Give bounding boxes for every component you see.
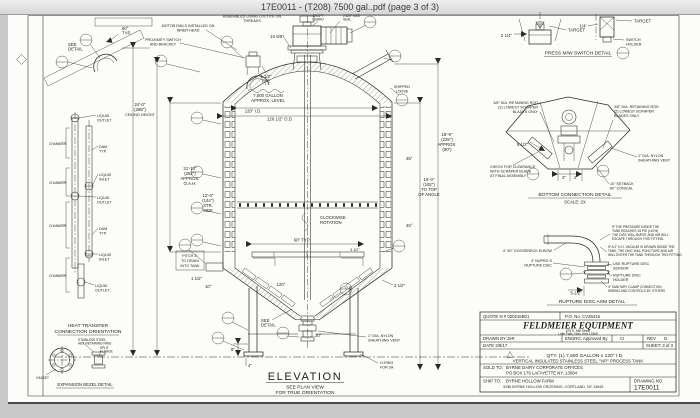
dim-45deg: 45° [406,223,413,228]
label-liquid-outlet: LIQUID [95,284,108,288]
engineering-drawing: 60° TYP. SEE DETAIL CHANNELS CHANNELS CH… [0,0,700,418]
label-channels: CHANNELS [49,224,66,228]
tb-po: P.O. No. CV26415 [565,314,601,319]
note-pitch: PITCH 2" [182,254,198,258]
label-liquid-outlet: OUTLET [97,201,112,205]
dim-top-of-angle: OF ANGLE [418,192,440,197]
bezel-title: EXPANSION BEZEL DETAIL [57,382,113,387]
note-retaining-rod: 3/8" DIA. RETAINING ROD [493,101,538,105]
label-disc-holder: RUPTURE DISC [613,274,641,278]
tb-engrg: ENGRG. Approved By [565,336,608,341]
note-motor-rails: INNER HEAD [177,29,200,33]
label-disc-holder: HOLDER [613,278,629,282]
note-clearance: WITH SCRAPER BLADE [490,170,532,174]
dim-bracket: 3 1/2" [350,248,360,252]
tb-ship-to-label: SHIP TO: [483,379,501,384]
tank-elevation [55,16,530,357]
bezel-note: GASKET [36,376,49,380]
view-subtitle: SEE PLAN VIEW [286,385,324,391]
label-nylon-vent: SHEATHING VENT [638,159,671,163]
right-dimension-lines [394,64,438,370]
tb-sold-to-label: SOLD TO: [483,365,503,370]
label-rupture-disc: 4" NUPRO S [531,259,553,263]
dim-10-deg: 10° [205,284,212,289]
dim-2: 2" [574,175,578,180]
tb-rev-label: REV [647,336,656,341]
label-liquid-outlet: OUTLET [97,119,112,123]
rupture-disc-title: RUPTURE DISC ASM DETAIL [559,299,626,305]
label-oring: FOR 3A [380,366,394,370]
dim-45deg: 45° [406,156,413,161]
note-pitch: TO DRAIN [181,259,199,263]
label-gooseneck: 4" 90° GOOSENECK ELBOW [503,249,553,253]
tb-sold-to: PO BOX 176 LAFAYETTE NY, 13084 [506,371,578,376]
label-nylon-vent: 1" DIA. NYLON [368,334,394,338]
dim-2-1-4: 2 1/4" [501,33,513,38]
note-motor-rails: MOTOR RAILS INSTALLED ON [162,24,215,28]
tb-drawn-by: DRAWN BY:JeR [483,336,515,341]
label-rotation: ROTATION [320,220,342,225]
label-nylon-vent: SHEATHING VENT [368,339,401,343]
label-nylon-vent: 1" DIA. NYLON [638,154,664,158]
tb-approver: CI [620,336,624,341]
dim-cone-angle: 120° [277,282,286,287]
label-disc-sensor: SENSOR [613,267,629,271]
heat-transfer-title: HEAT TRANSFER [68,323,109,329]
label-dam-typ: DAM [99,145,107,149]
corner-insulation-detail [17,18,152,86]
label-liquid-inlet: INLET [99,258,110,262]
label-see-detail: DETAIL [68,47,83,52]
label-disc-sensor: USE RUPTURE DISC [613,262,650,266]
dim-4: 4" [248,363,252,368]
label-oring: O-RING [380,361,393,365]
label-liquid-outlet: LIQUID [97,196,110,200]
note-clearance: AT FINAL ASSEMBLY [490,174,527,178]
tb-drawing-no-label: DRAWING NO. [634,379,663,384]
diamond-marker [17,55,27,65]
label-seal: SEAL [343,18,351,22]
note-retaining-rod: (2) LOWEST SCRAPER [498,106,538,110]
bottom-connection-title: BOTTOM CONNECTION DETAIL [538,192,611,198]
tb-sheet: SHEET: 3 of 3 [646,343,674,348]
label-liquid-outlet: OUTLET [95,289,110,293]
note-proximity: AND BRACKET [150,43,177,47]
rupture-note: ESCAPE THROUGH THIS FITTING. [612,237,664,241]
dim-sweep: 60" TYP. [294,238,310,243]
dim-1-1-2: 1 1/2" [191,276,203,281]
note-setback: 10" SETBACK [610,182,634,186]
label-channels: CHANNELS [49,274,66,278]
label-clamp-connection: WIRING AND CONTROLS BY OTHERS [608,289,665,293]
dim-1-1-2-typ: TYP. [262,79,271,84]
label-dam-typ: TYP. [99,232,107,236]
dim-1-4: 1/4" [580,24,588,29]
note-clearance: CHECK FOR CLEARANCE [490,165,536,169]
label-liquid-inlet: INLET [99,178,110,182]
label-dam-typ: DAM [99,227,107,231]
tb-sold-to: BYRNE DAIRY CORPORATE OFFICES [506,365,583,370]
note-retaining-rod: BLADES ONLY [513,110,539,114]
expansion-bezel-detail [46,342,105,375]
label-60-typ: TYP. [122,31,131,36]
dim-outer-diameter: 126 1/2" O.D. [267,117,293,122]
note-setback: 60° CONICAL [610,187,633,191]
label-liquid-inlet: LIQUID [99,253,112,257]
dim-5-1-2: 5-1/2" [570,291,582,296]
label-switch-holder: HOLDER [626,43,642,47]
dim-2: 2" [562,175,566,180]
label-channels: CHANNELS [49,142,66,146]
dim-8: 8" [231,347,235,352]
heat-label-leaders [79,115,98,285]
revision-triangle [507,352,513,358]
view-title-elevation: ELEVATION [268,371,343,383]
tb-description: VERTICAL INSULATED STAINLESS STEEL "VIP"… [513,359,644,364]
press-switch-title: PRESS M/W SWITCH DETAIL [545,51,612,57]
note-retaining-rod: (2) LOWEST SCRAPER [614,110,654,114]
dim-approx-height: (90") [442,147,452,152]
tb-rev: D [664,336,667,341]
label-shipped-loose: SHIPPED [394,85,411,89]
dim-leg: 30" [315,333,322,338]
view-subtitle: FOR TRUE ORIENTATION [276,390,335,396]
note-pitch: INTO TANK [180,264,200,268]
note-retaining-rod: 3/8" DIA. RETAINING ROD [614,105,659,109]
label-liquid-outlet: LIQUID [97,114,110,118]
label-switch-holder: SWITCH [626,38,641,42]
tb-ship-to: BYRNE HOLLOW FARM [506,379,554,384]
label-channels: CHANNELS [49,181,66,185]
tb-ship-to: 3156 BYRNE HOLLOW CROSSING, CORTLAND, NY… [503,385,603,389]
dim-inner-diameter: 120" I.D. [245,109,262,114]
label-shaft-guard: GUARD [312,18,324,22]
bezel-note: HEX RETAINING RING [78,342,112,346]
note-proximity: PROXIMITY SWITCH [145,38,181,42]
dim-oah: O.A.H. [184,181,197,186]
label-target: TARGET [634,19,651,24]
rotation-arrow [302,213,308,231]
label-dam-typ: TYP. [99,150,107,154]
rupture-note: WILL ENTER THE TANK THROUGH THIS FITTING… [608,253,683,257]
heat-transfer-title: CONNECTION ORIENTATION [55,329,122,335]
dim-3-1-2: 3 1/2" [394,283,406,288]
label-liquid-inlet: LIQUID [99,173,112,177]
dim-ceiling: CEILING HEIGHT [125,113,155,117]
note-retaining-rod: BLADES ONLY [614,114,640,118]
heat-transfer-strip [62,112,93,298]
note-loctite: ASSEMBLED USING LOCTITE ON [223,15,282,19]
label-rupture-disc: RUPTURE DISC [524,264,552,268]
dim-10-5-8: 10 5/8" [270,34,284,39]
label-shipped-loose: LOOSE [396,90,409,94]
note-loctite: THREADS [243,19,261,23]
label-capacity-level: APPROX. LEVEL [251,98,285,103]
bottom-connection-scale: SCALE: 2X [564,200,586,205]
tb-quote: QUOTE N # 020216B01 [483,314,530,319]
tb-date: DATE 2/8/17 [483,343,508,348]
callout-balloon [56,56,68,68]
bezel-note: FLANGE [100,350,113,354]
tb-drawing-no: 17E0011 [634,385,660,392]
rupture-disc-detail [544,234,612,296]
dim-5-1-2: 5 1/2" [517,142,529,147]
label-see-detail: DETAIL [261,323,276,328]
dim-ceiling: (288") [134,107,146,112]
